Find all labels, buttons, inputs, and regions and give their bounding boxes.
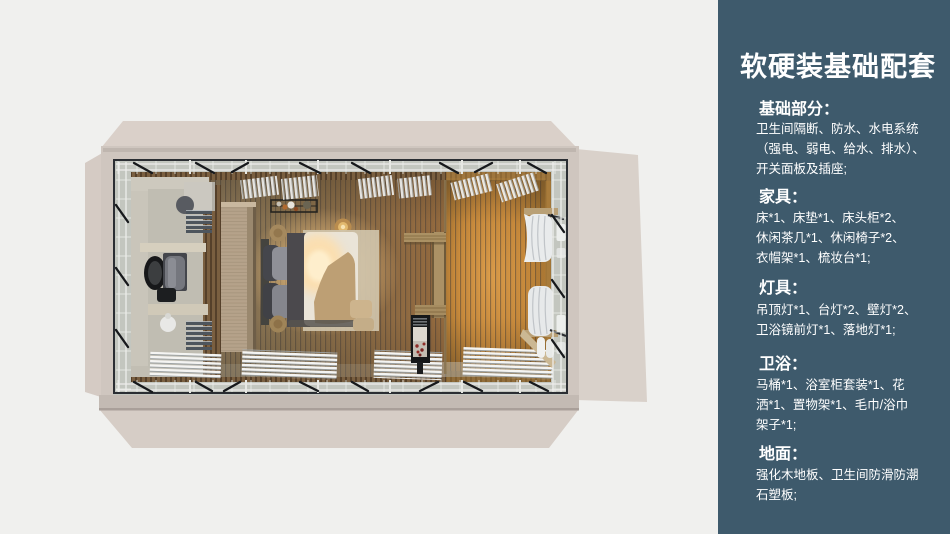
svg-text:休闲茶几*1、休闲椅子*2、: 休闲茶几*1、休闲椅子*2、 [756,230,905,245]
svg-text:地面：: 地面： [759,444,807,463]
svg-text:基础部分：: 基础部分： [758,99,839,118]
svg-text:卫生间隔断、防水、水电系统: 卫生间隔断、防水、水电系统 [756,121,919,136]
svg-text:洒*1、置物架*1、毛巾/浴巾: 洒*1、置物架*1、毛巾/浴巾 [756,398,908,412]
svg-text:软硬装基础配套: 软硬装基础配套 [740,52,936,82]
svg-text:衣帽架*1、梳妆台*1;: 衣帽架*1、梳妆台*1; [756,250,871,265]
svg-text:床*1、床垫*1、床头柜*2、: 床*1、床垫*1、床头柜*2、 [756,210,904,225]
svg-text:石塑板;: 石塑板; [756,487,797,502]
svg-text:马桶*1、浴室柜套装*1、花: 马桶*1、浴室柜套装*1、花 [756,377,905,392]
svg-text:吊顶灯*1、台灯*2、壁灯*2、: 吊顶灯*1、台灯*2、壁灯*2、 [756,302,916,317]
svg-text:家具：: 家具： [759,187,807,206]
svg-text:灯具：: 灯具： [759,279,807,297]
svg-text:架子*1;: 架子*1; [756,418,796,432]
svg-text:（强电、弱电、给水、排水）、: （强电、弱电、给水、排水）、 [756,142,925,156]
svg-text:卫浴：: 卫浴： [759,354,807,373]
svg-text:卫浴镜前灯*1、落地灯*1;: 卫浴镜前灯*1、落地灯*1; [756,322,896,337]
svg-text:强化木地板、卫生间防滑防潮: 强化木地板、卫生间防滑防潮 [756,467,919,482]
svg-text:开关面板及插座;: 开关面板及插座; [756,161,847,176]
